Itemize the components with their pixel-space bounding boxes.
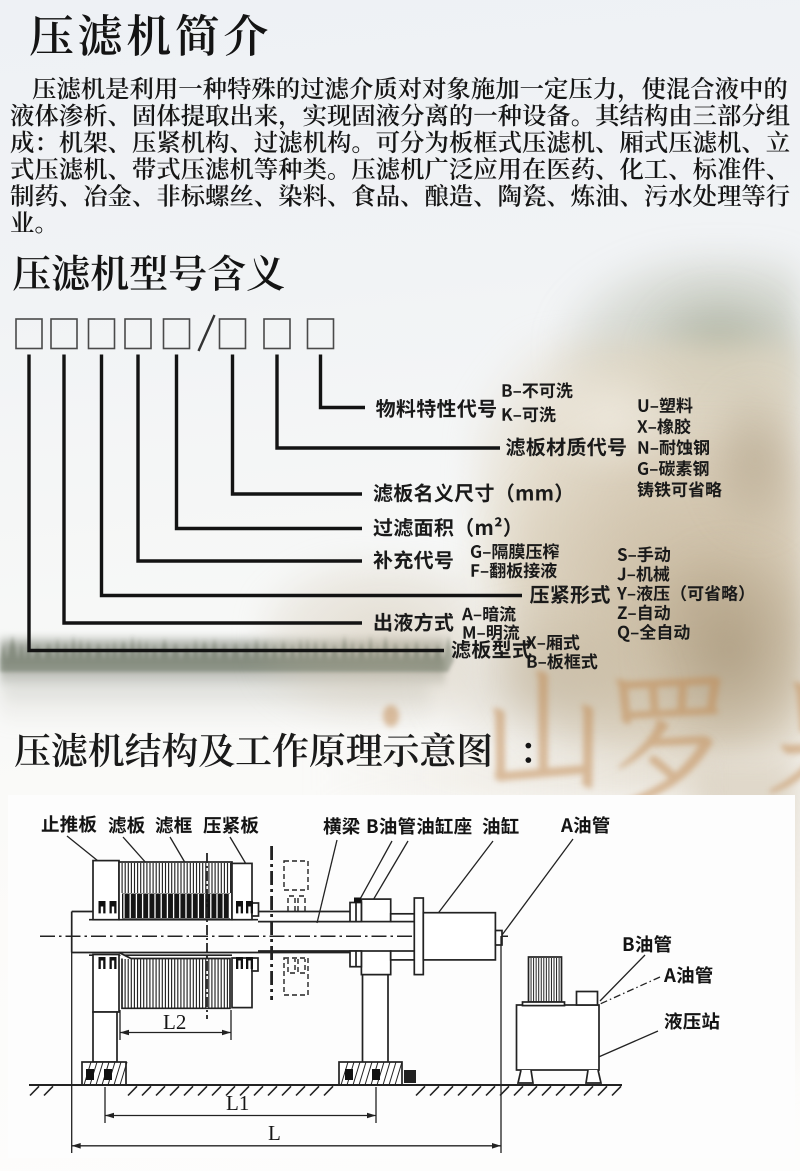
svg-text:L1: L1 [226, 1091, 249, 1115]
svg-text:L2: L2 [163, 1010, 186, 1034]
svg-text:L: L [268, 1121, 281, 1145]
